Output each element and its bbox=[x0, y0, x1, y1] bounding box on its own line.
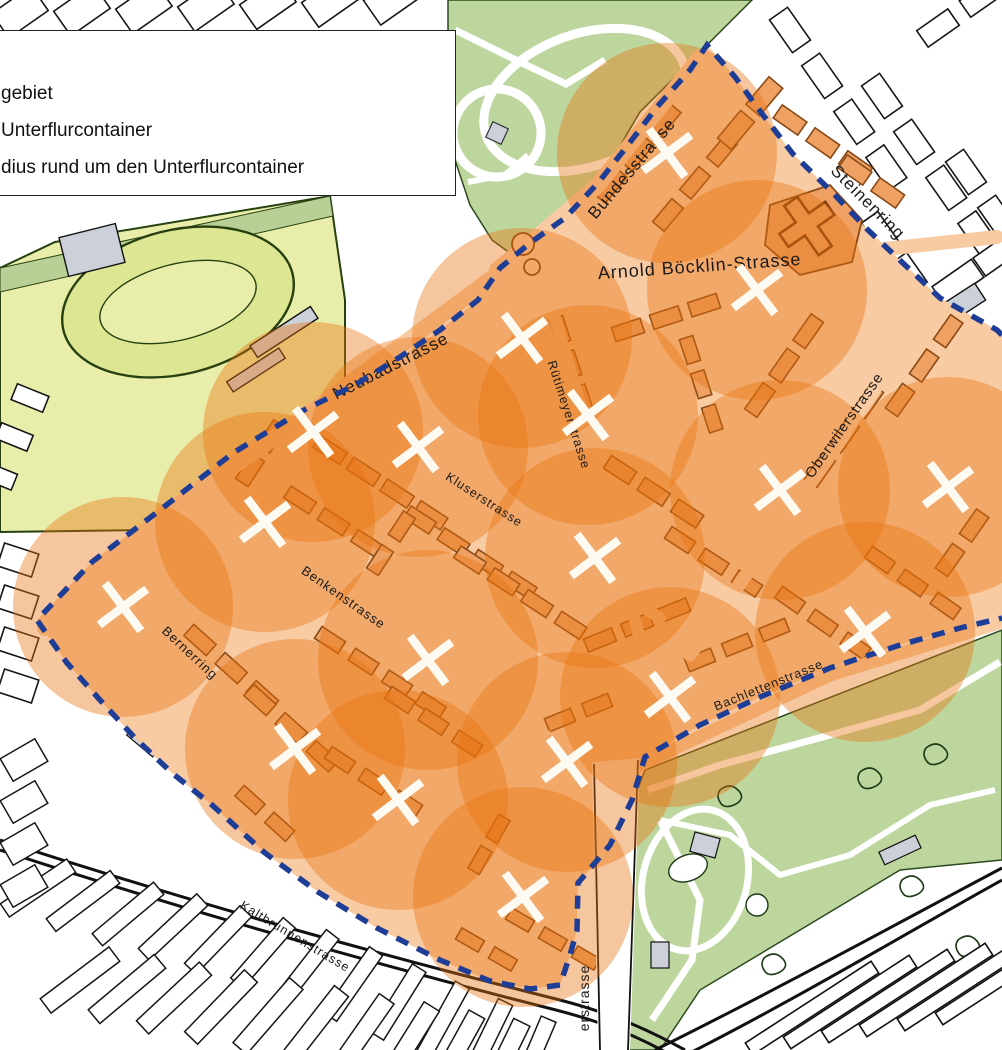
legend: gebiet Unterflurcontainer dius rund um d… bbox=[0, 30, 456, 196]
legend-item-container-label: Unterflurcontainer bbox=[1, 120, 152, 141]
street-label: erstrasse bbox=[576, 965, 592, 1032]
map: BundesstrasseSteinenringArnold Böcklin-S… bbox=[0, 0, 1002, 1050]
legend-item-container: Unterflurcontainer bbox=[1, 112, 455, 149]
legend-item-pilot-area: gebiet bbox=[1, 75, 455, 112]
legend-item-pilot-area-label: gebiet bbox=[1, 83, 53, 104]
legend-item-radius: dius rund um den Unterflurcontainer bbox=[1, 149, 455, 186]
legend-item-radius-label: dius rund um den Unterflurcontainer bbox=[1, 157, 304, 178]
